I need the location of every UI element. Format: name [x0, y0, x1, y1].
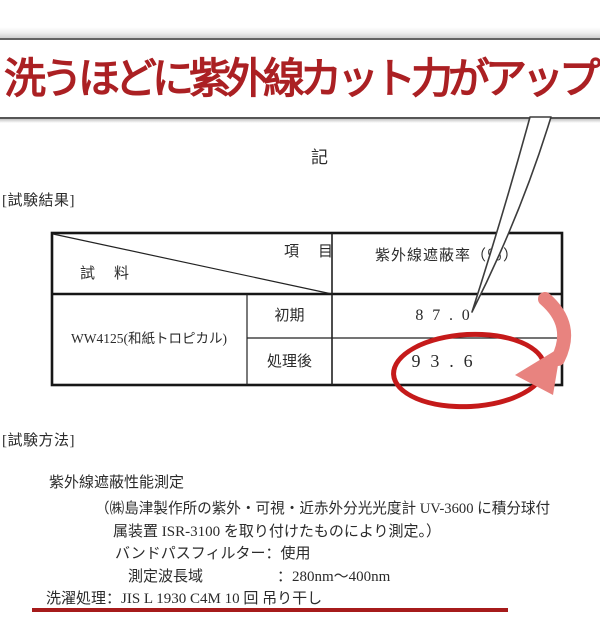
swoosh-arrow-icon: [503, 291, 583, 406]
method-title: 紫外線遮蔽性能測定: [49, 471, 184, 492]
scanned-test-report: 洗うほどに紫外線カット力がアップ 記 [試験結果] 項 目 試 料 紫外線遮蔽率…: [0, 0, 600, 636]
table-cell-sample-name: WW4125(和紙トロピカル): [51, 327, 247, 347]
table-header-item: 項 目: [284, 240, 335, 261]
method-wavelength-label: 測定波長域: [128, 565, 203, 586]
memo-mark: 記: [311, 143, 329, 168]
method-washing-process: 洗濯処理：JIS L 1930 C4M 10 回 吊り干し: [46, 587, 322, 608]
method-instrument-line2: 属装置 ISR-3100 を取り付けたものにより測定。）: [113, 520, 441, 541]
table-header-sample: 試 料: [80, 262, 131, 283]
red-underline: [32, 608, 508, 612]
table-cell-row-label-initial: 初期: [247, 304, 332, 325]
method-wavelength-value: ：280nm～400nm: [277, 565, 390, 586]
method-section-label: [試験方法]: [2, 429, 75, 450]
headline: 洗うほどに紫外線カット力がアップ: [0, 52, 600, 108]
method-instrument-line1: （㈱島津製作所の紫外・可視・近赤外分光光度計 UV-3600 に積分球付: [95, 497, 550, 518]
results-section-label: [試験結果]: [2, 189, 75, 210]
table-cell-row-label-after: 処理後: [247, 350, 332, 371]
top-divider: [0, 27, 600, 40]
method-bandpass-filter: バンドパスフィルター：使用: [115, 542, 310, 563]
